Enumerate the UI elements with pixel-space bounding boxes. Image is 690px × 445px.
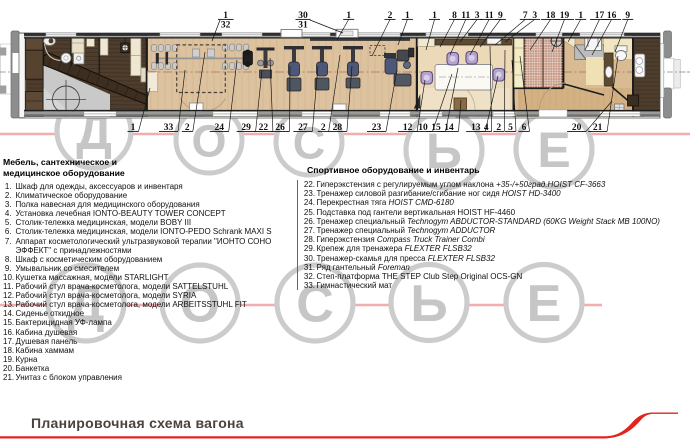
svg-text:31: 31 <box>298 21 308 31</box>
svg-text:32: 32 <box>221 21 231 31</box>
